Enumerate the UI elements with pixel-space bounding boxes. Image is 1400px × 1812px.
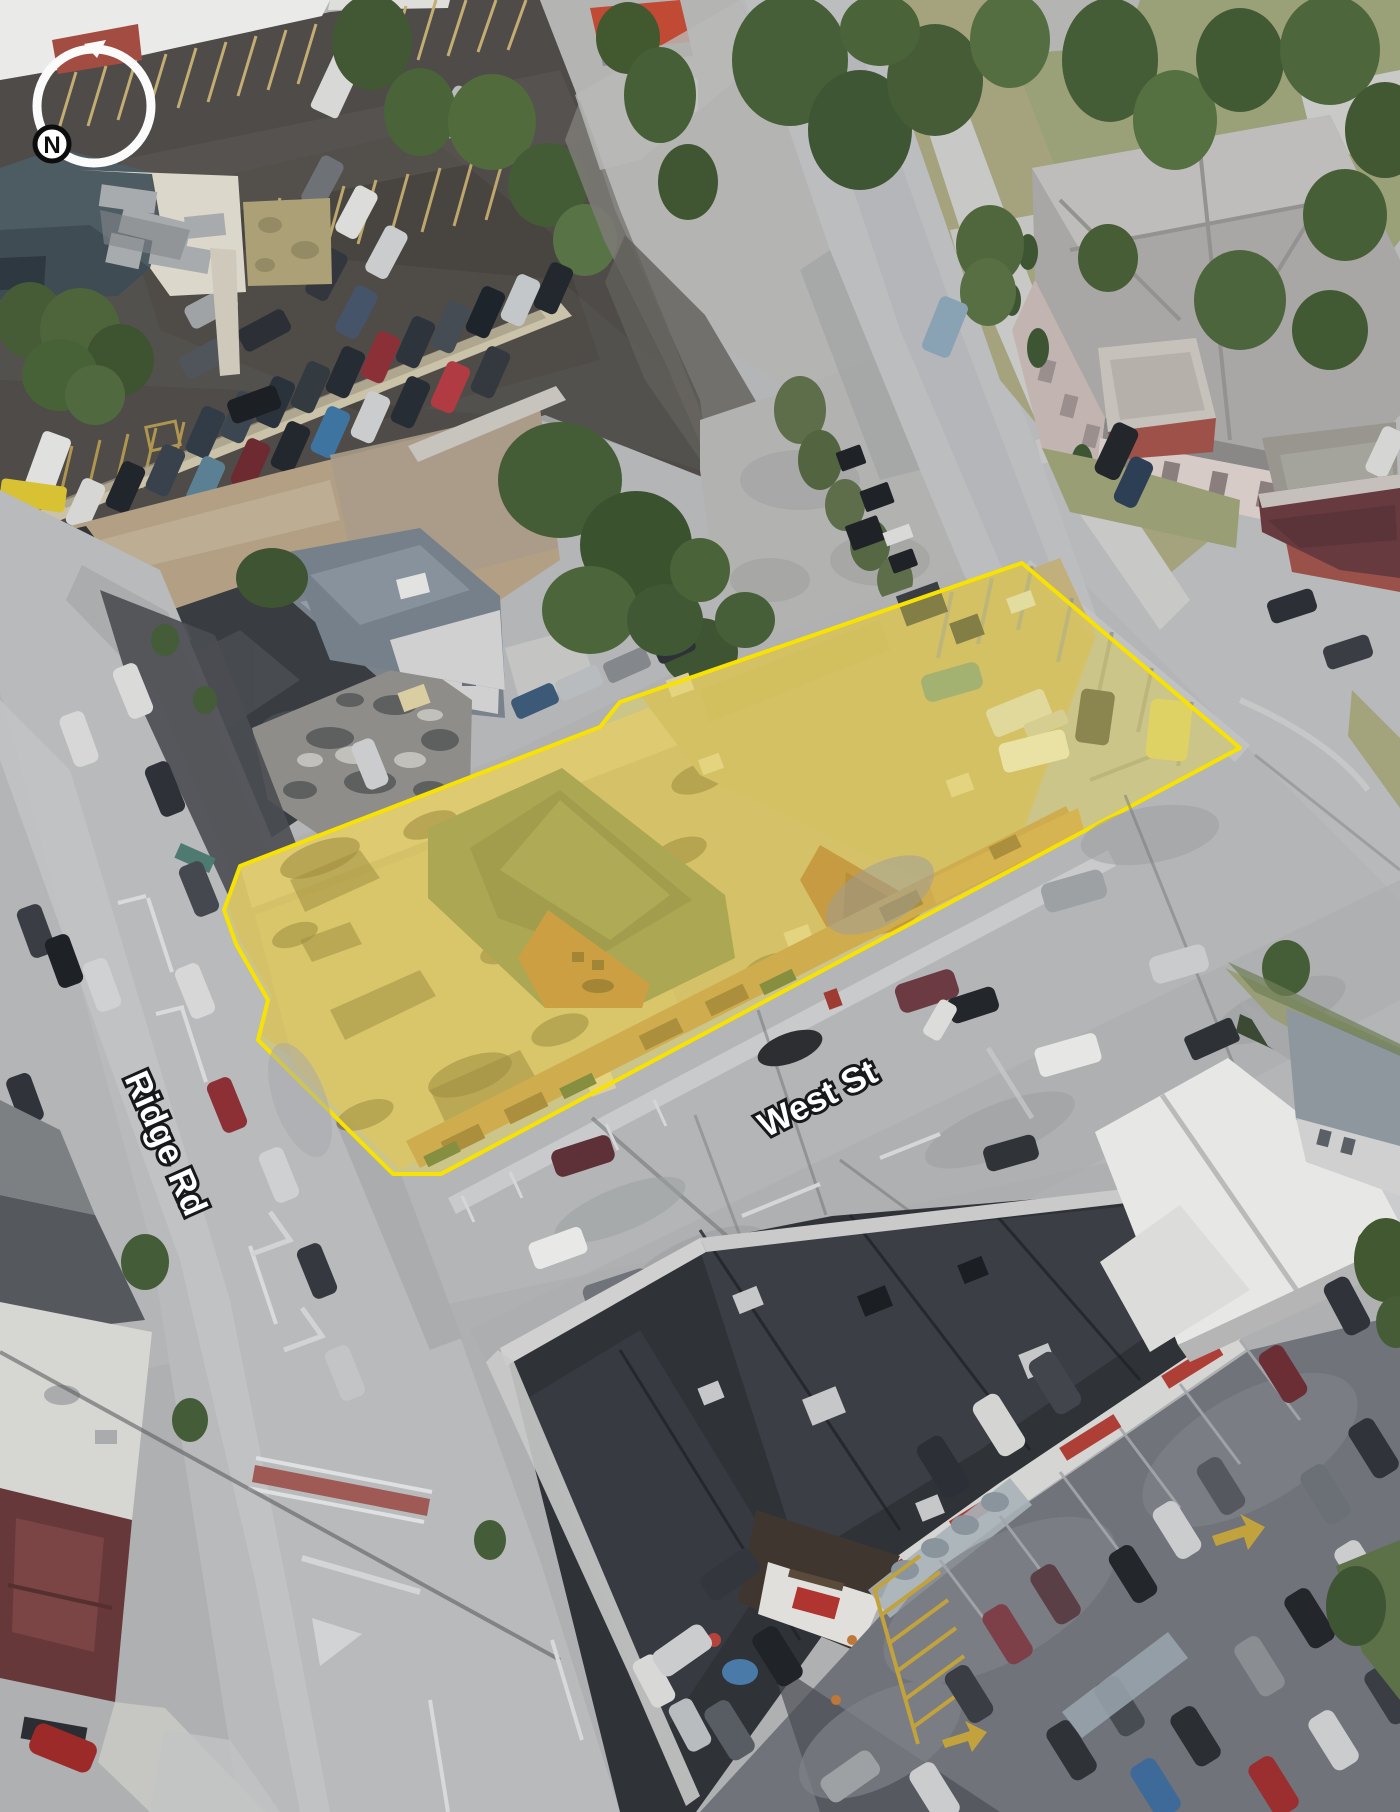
svg-text:N: N	[43, 132, 60, 159]
